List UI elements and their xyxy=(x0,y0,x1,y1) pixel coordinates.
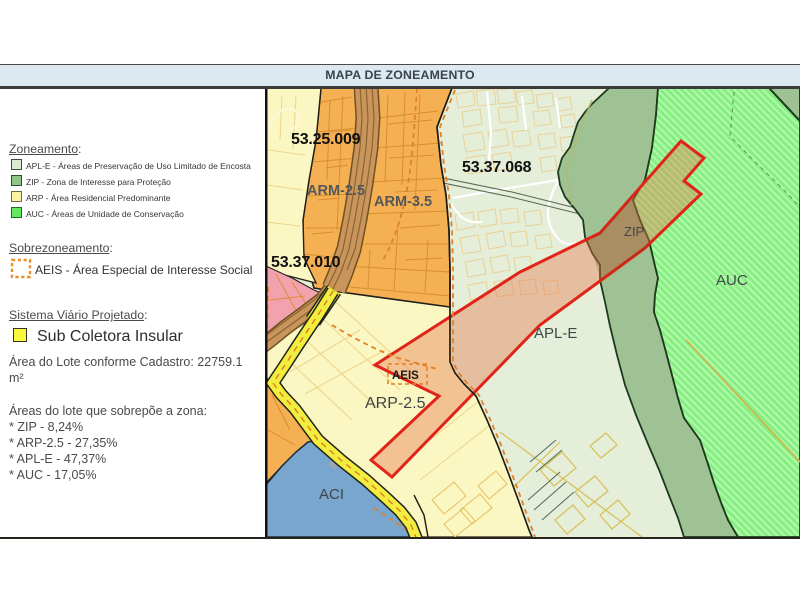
svg-text:ACI: ACI xyxy=(319,486,344,503)
svg-text:53.37.068: 53.37.068 xyxy=(462,159,532,176)
svg-text:ZIP: ZIP xyxy=(624,224,644,239)
svg-text:53.37.010: 53.37.010 xyxy=(271,254,341,271)
svg-text:53.25.009: 53.25.009 xyxy=(291,131,361,148)
svg-text:APL-E: APL-E xyxy=(534,325,577,342)
svg-text:ARP-2.5: ARP-2.5 xyxy=(365,395,426,412)
svg-text:ARM-2.5: ARM-2.5 xyxy=(307,183,365,199)
svg-text:AEIS: AEIS xyxy=(392,370,419,382)
svg-text:AUC: AUC xyxy=(716,272,748,289)
svg-text:ARM-3.5: ARM-3.5 xyxy=(374,194,432,210)
